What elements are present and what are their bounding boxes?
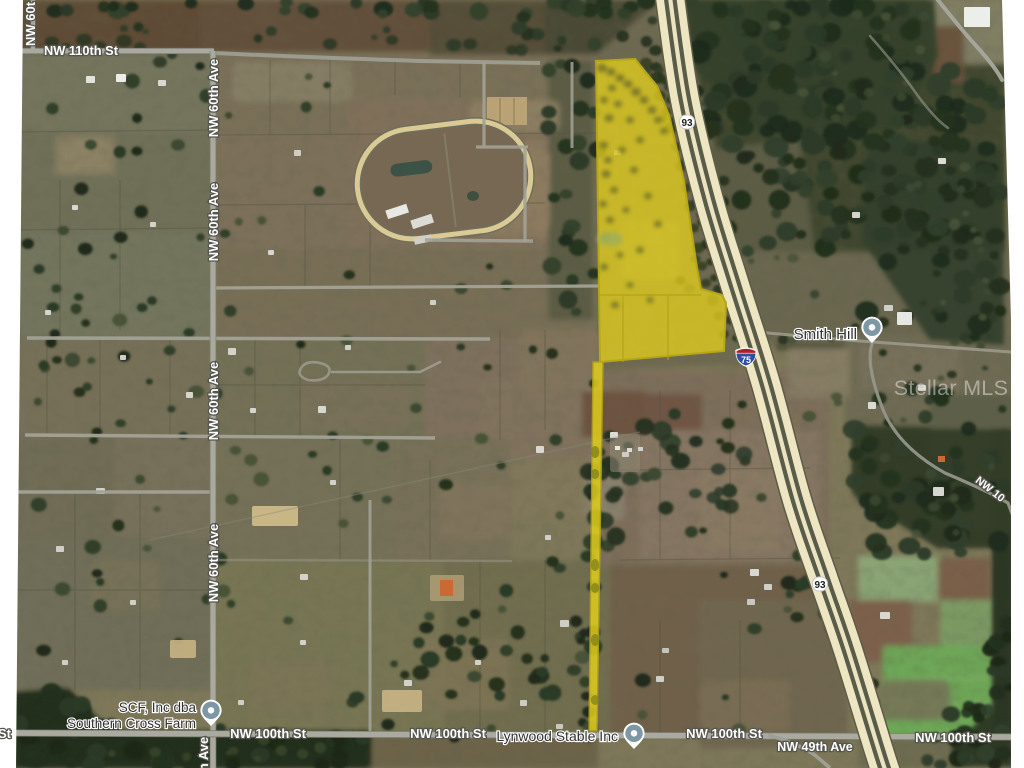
svg-text:Stellar MLS: Stellar MLS [894,376,1008,400]
svg-text:NW 49th Ave: NW 49th Ave [777,740,853,754]
svg-text:75: 75 [741,355,751,365]
svg-text:Southern Cross Farm: Southern Cross Farm [67,716,196,731]
svg-text:Smith Hill: Smith Hill [794,326,857,343]
svg-text:NW 110th St: NW 110th St [44,43,119,58]
svg-text:93: 93 [681,118,693,129]
svg-text:SCF, Inc dba: SCF, Inc dba [119,700,197,715]
svg-text:NW 60th Ave: NW 60th Ave [206,59,221,138]
svg-text:NW 60th Ave: NW 60th Ave [206,524,221,603]
svg-text:Lynwood Stable Inc: Lynwood Stable Inc [496,728,618,744]
svg-text:NW 100th St: NW 100th St [686,726,763,741]
svg-text:NW 60t: NW 60t [23,1,38,46]
svg-text:NW 60th Ave: NW 60th Ave [206,183,221,262]
svg-text:NW 100th St: NW 100th St [410,726,487,741]
svg-text:NW 60th Ave: NW 60th Ave [206,362,221,441]
svg-text:93: 93 [814,580,826,591]
svg-text:n Ave: n Ave [196,737,211,768]
svg-text:NW 100th St: NW 100th St [230,726,307,741]
svg-text:NW 100th St: NW 100th St [915,730,992,745]
svg-text:St: St [0,726,12,741]
